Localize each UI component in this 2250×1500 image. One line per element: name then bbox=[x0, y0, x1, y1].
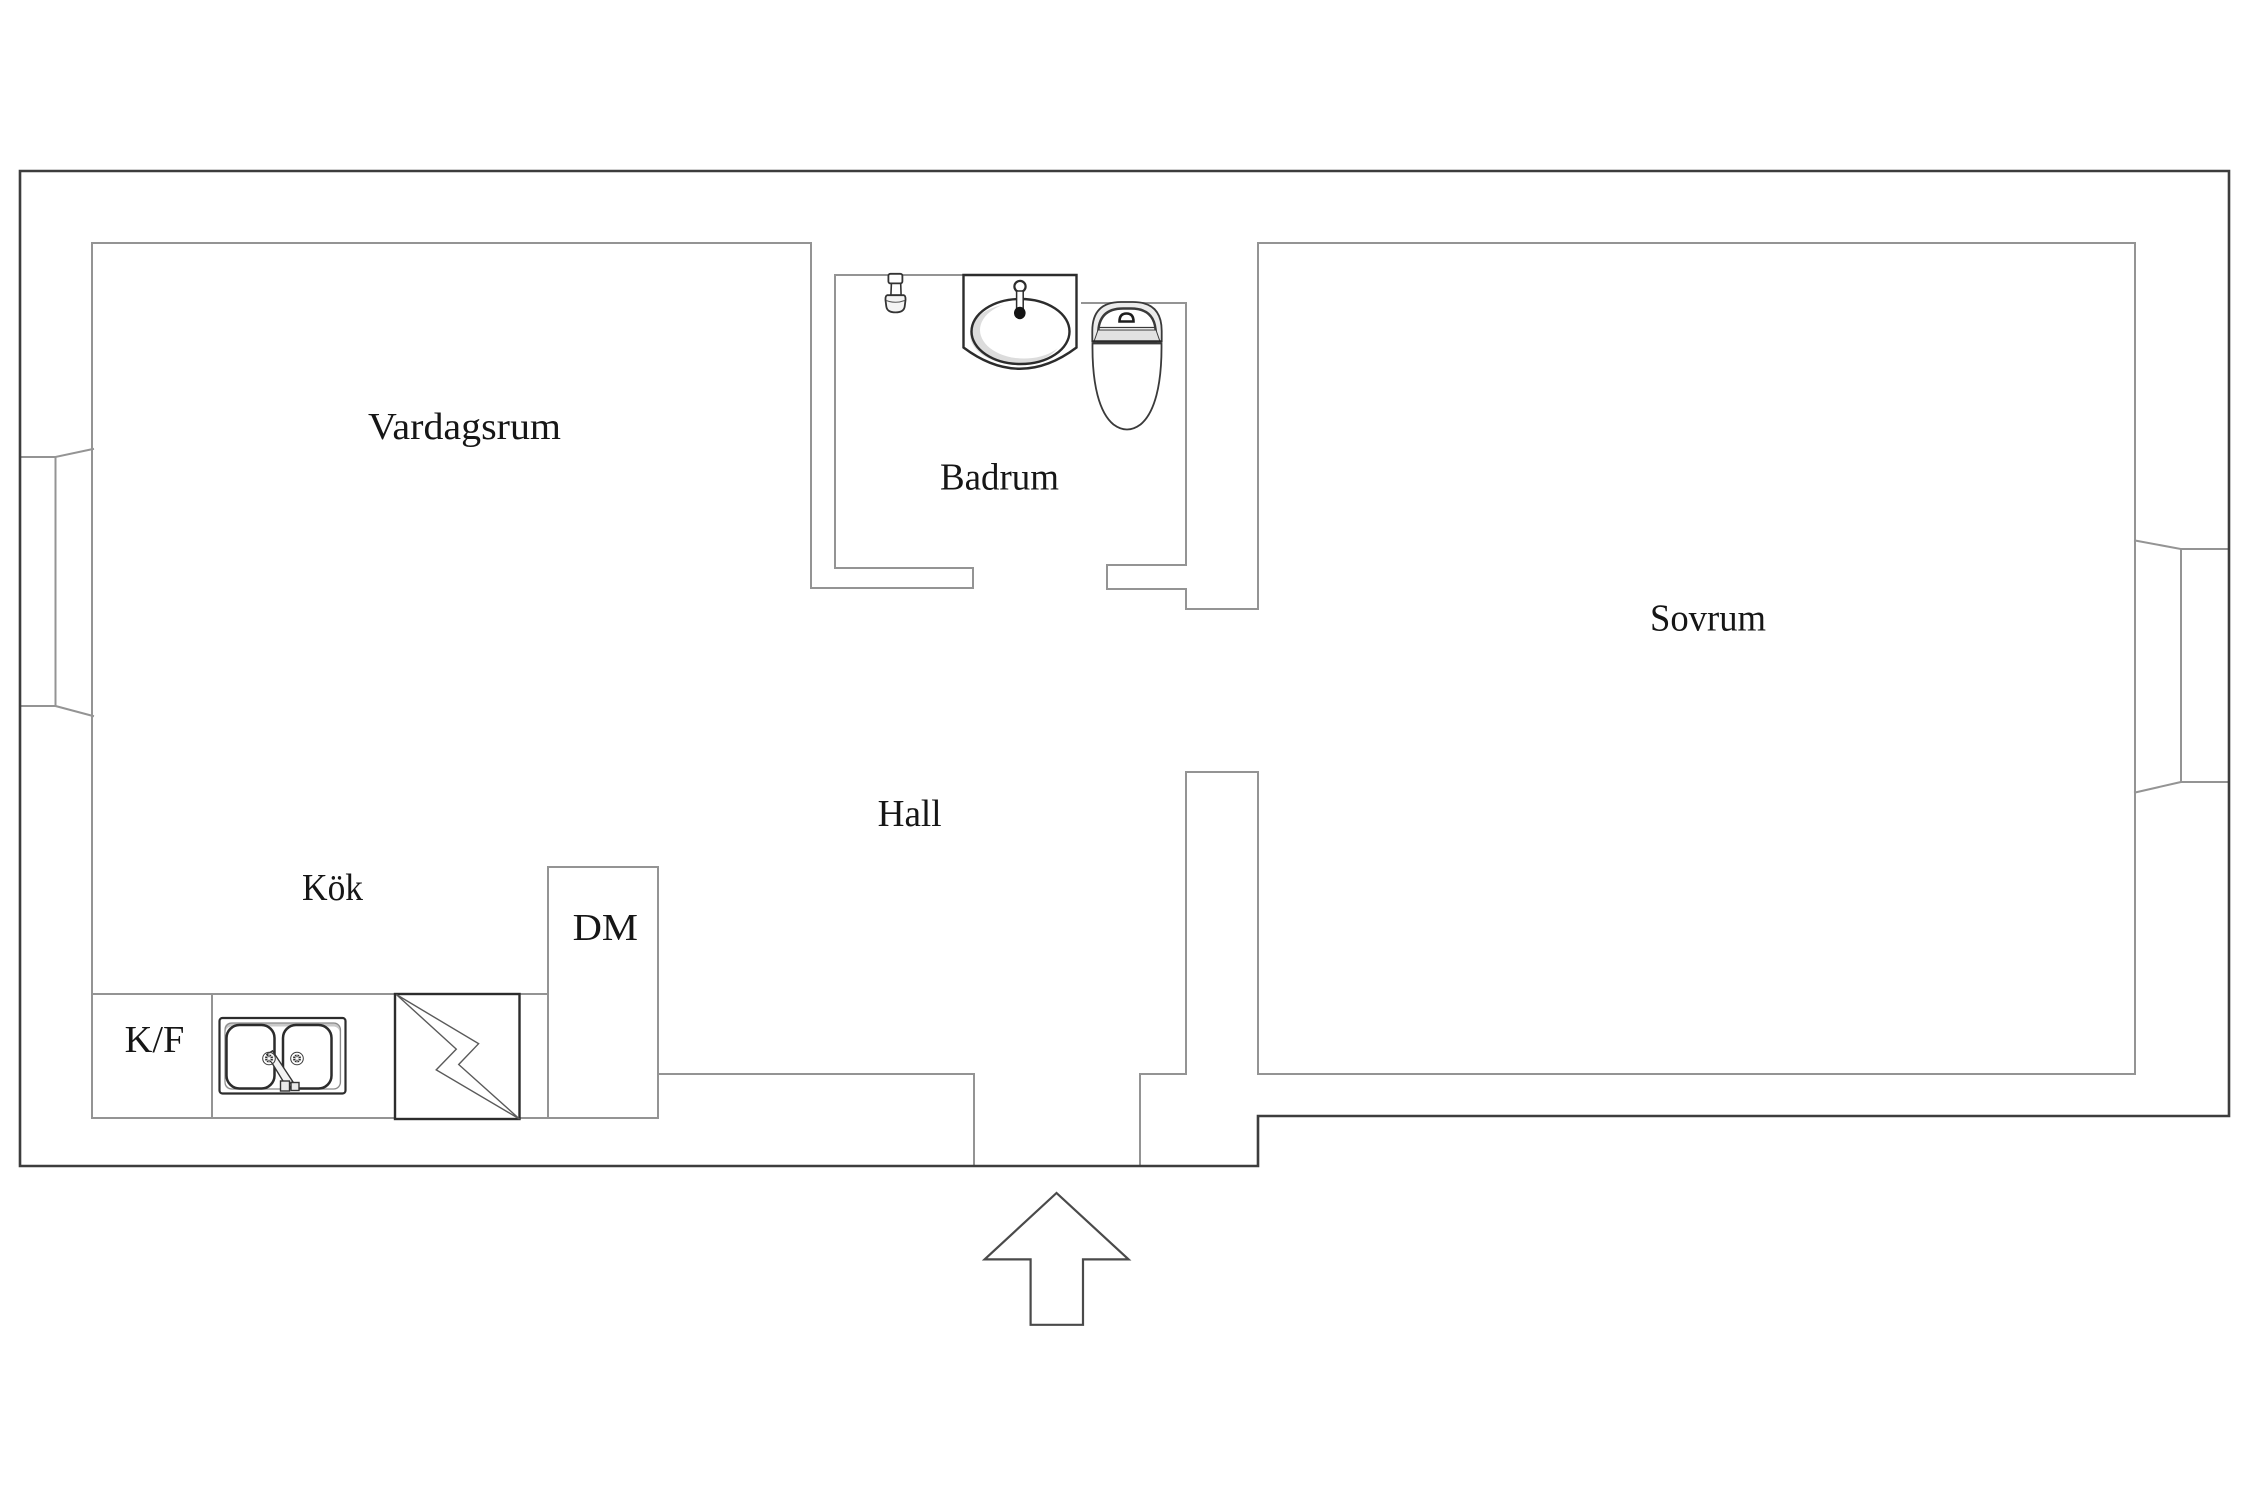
svg-text:K/F: K/F bbox=[125, 1019, 185, 1061]
svg-text:Hall: Hall bbox=[878, 793, 942, 835]
svg-text:Sovrum: Sovrum bbox=[1650, 598, 1766, 640]
svg-text:DM: DM bbox=[573, 907, 638, 949]
svg-text:Kök: Kök bbox=[302, 867, 364, 909]
svg-text:Badrum: Badrum bbox=[940, 456, 1059, 498]
svg-text:Vardagsrum: Vardagsrum bbox=[368, 406, 561, 448]
